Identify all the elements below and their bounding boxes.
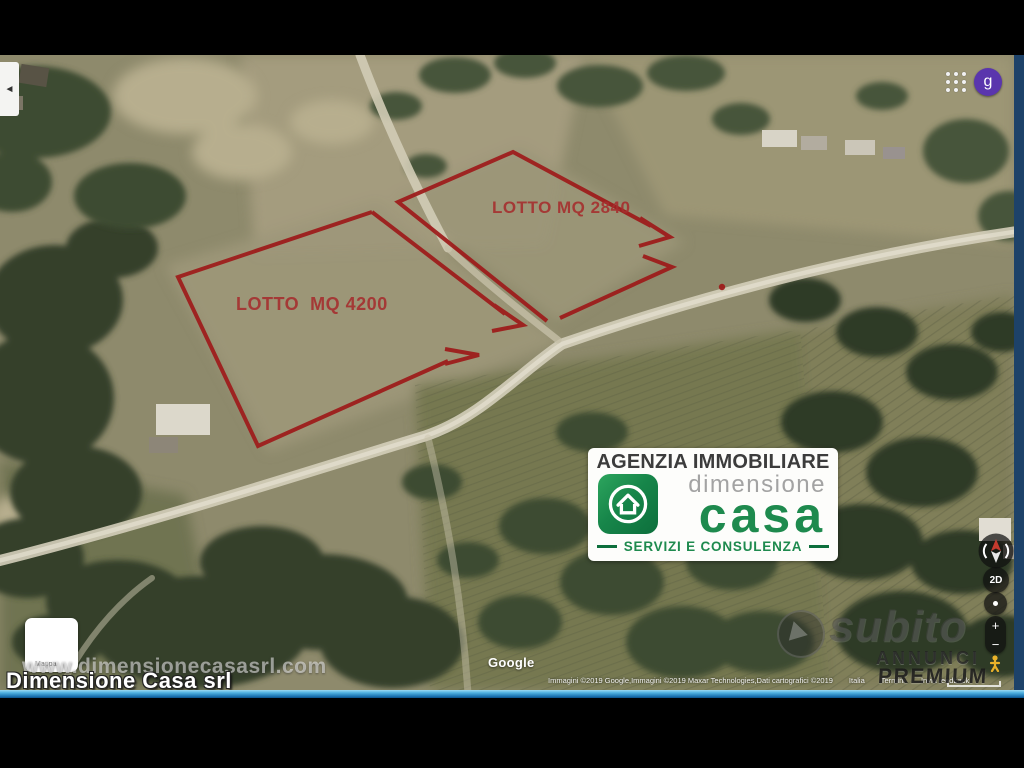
attribution-region: Italia	[849, 676, 865, 685]
back-panel-arrow[interactable]: ◄	[0, 62, 19, 116]
brand-casa: casa	[658, 496, 826, 535]
map-canvas[interactable]	[0, 55, 1014, 690]
screenshot-root: LOTTO MQ 2840 LOTTO MQ 4200 AGENZIA IMMO…	[0, 0, 1024, 768]
tagline-dash-left	[597, 545, 617, 548]
premium-watermark: PREMIUM	[877, 665, 988, 689]
pegman-icon[interactable]	[989, 655, 1001, 677]
account-avatar[interactable]: g	[974, 68, 1002, 96]
compass-icon	[977, 532, 1015, 570]
zoom-out-button[interactable]: −	[985, 635, 1006, 654]
tagline-dash-right	[809, 545, 829, 548]
street-view-button[interactable]	[984, 592, 1007, 615]
satellite-imagery	[0, 55, 1014, 690]
back-arrow-icon: ◄	[5, 84, 15, 95]
agency-tagline: SERVIZI E CONSULENZA	[588, 539, 838, 554]
google-logo[interactable]: Google	[488, 655, 535, 670]
compass-button[interactable]	[977, 532, 1015, 570]
bottom-black-bar	[0, 698, 1024, 768]
lot-area-label-2840: LOTTO MQ 2840	[492, 198, 630, 218]
zoom-in-button[interactable]: +	[985, 616, 1006, 635]
house-icon	[606, 482, 650, 526]
dot-icon	[993, 601, 998, 606]
house-badge	[598, 474, 658, 534]
apps-grid-icon[interactable]	[946, 72, 968, 94]
agency-title: AGENZIA IMMOBILIARE	[588, 452, 838, 472]
subito-wordmark: subito	[829, 602, 967, 652]
attribution-text: Immagini ©2019 Google,Immagini ©2019 Max…	[548, 676, 833, 685]
red-marker-dot	[719, 284, 725, 290]
right-edge-strip	[1014, 55, 1024, 690]
2d-mode-button[interactable]: 2D	[983, 567, 1009, 593]
subito-logo-icon	[777, 610, 825, 658]
zoom-control: + −	[985, 616, 1006, 654]
tagline-text: SERVIZI E CONSULENZA	[624, 539, 803, 554]
bottom-blue-bar	[0, 690, 1024, 698]
lot-area-label-4200: LOTTO MQ 4200	[236, 294, 388, 315]
agency-logo-card: AGENZIA IMMOBILIARE dimensione casa SERV…	[588, 448, 838, 561]
